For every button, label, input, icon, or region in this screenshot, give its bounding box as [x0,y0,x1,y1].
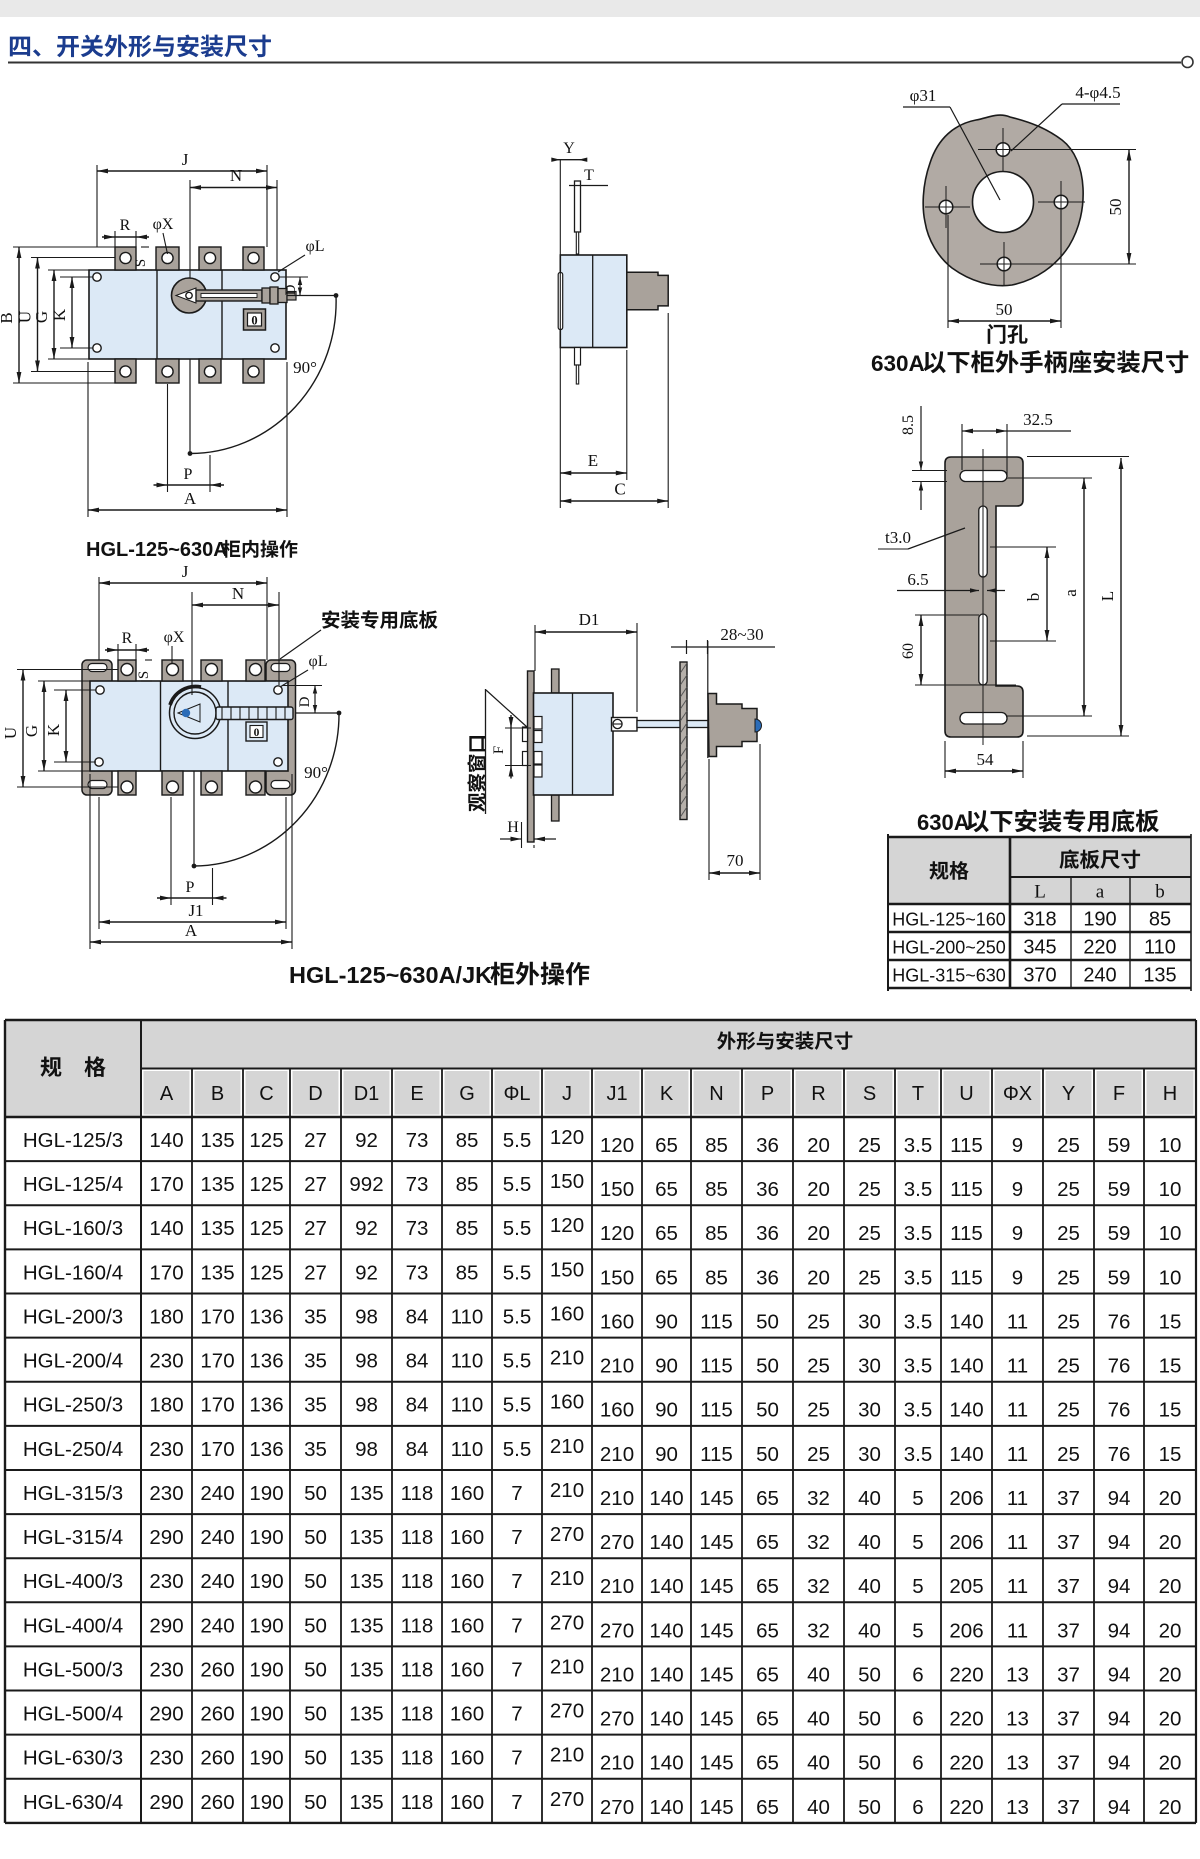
svg-text:t3.0: t3.0 [885,528,911,547]
svg-text:P: P [184,466,193,483]
svg-text:145: 145 [699,1796,733,1819]
svg-text:135: 135 [200,1173,234,1196]
svg-text:25: 25 [1057,1134,1080,1157]
svg-text:85: 85 [456,1261,479,1284]
svg-text:118: 118 [401,1570,434,1593]
svg-text:118: 118 [401,1747,434,1770]
svg-text:3.5: 3.5 [904,1310,933,1333]
svg-text:90°: 90° [293,358,317,377]
svg-text:230: 230 [149,1658,183,1681]
svg-text:140: 140 [649,1752,683,1775]
svg-text:HGL-200/4: HGL-200/4 [23,1350,123,1373]
svg-text:32: 32 [807,1487,830,1510]
svg-text:220: 220 [1083,937,1116,959]
svg-text:E: E [410,1083,423,1105]
svg-text:94: 94 [1108,1487,1131,1510]
svg-text:25: 25 [858,1266,881,1289]
svg-text:7: 7 [511,1791,522,1814]
svg-text:135: 135 [349,1614,383,1637]
svg-text:94: 94 [1108,1619,1131,1642]
svg-text:35: 35 [304,1305,327,1328]
svg-text:N: N [709,1083,723,1105]
svg-text:5.5: 5.5 [503,1394,532,1417]
svg-text:G: G [459,1083,475,1105]
svg-text:190: 190 [249,1570,283,1593]
svg-text:118: 118 [401,1482,434,1505]
svg-text:73: 73 [406,1261,429,1284]
svg-text:37: 37 [1057,1708,1080,1731]
svg-text:230: 230 [149,1747,183,1770]
svg-text:260: 260 [200,1791,234,1814]
svg-text:145: 145 [699,1752,733,1775]
svg-text:50: 50 [304,1747,327,1770]
svg-text:65: 65 [756,1619,779,1642]
svg-text:36: 36 [756,1178,779,1201]
svg-text:5: 5 [912,1531,923,1554]
svg-text:260: 260 [200,1703,234,1726]
svg-text:7: 7 [511,1703,522,1726]
svg-text:84: 84 [406,1350,429,1373]
svg-text:210: 210 [600,1487,634,1510]
svg-text:40: 40 [858,1619,881,1642]
svg-text:140: 140 [649,1531,683,1554]
svg-text:H: H [1163,1083,1177,1105]
svg-text:73: 73 [406,1129,429,1152]
svg-text:B: B [0,312,16,323]
svg-text:10: 10 [1159,1222,1182,1245]
svg-text:37: 37 [1057,1796,1080,1819]
svg-text:5.5: 5.5 [503,1173,532,1196]
svg-text:135: 135 [349,1526,383,1549]
svg-text:G: G [32,311,51,323]
svg-text:HGL-315~630: HGL-315~630 [892,966,1006,986]
svg-text:205: 205 [949,1575,983,1598]
svg-text:HGL-250/4: HGL-250/4 [23,1438,123,1461]
svg-text:145: 145 [699,1487,733,1510]
svg-text:φX: φX [164,629,185,646]
svg-text:59: 59 [1108,1266,1131,1289]
svg-text:136: 136 [249,1350,283,1373]
svg-text:260: 260 [200,1658,234,1681]
svg-text:27: 27 [304,1217,327,1240]
svg-text:R: R [811,1083,825,1105]
svg-text:115: 115 [950,1222,983,1245]
svg-text:94: 94 [1108,1708,1131,1731]
svg-text:B: B [211,1083,224,1105]
svg-text:32.5: 32.5 [1023,410,1053,429]
svg-text:140: 140 [649,1663,683,1686]
svg-text:65: 65 [655,1222,678,1245]
svg-text:ΦX: ΦX [1003,1083,1032,1105]
svg-text:125: 125 [249,1129,283,1152]
svg-text:115: 115 [950,1266,983,1289]
svg-text:50: 50 [858,1663,881,1686]
svg-text:HGL-500/3: HGL-500/3 [23,1658,123,1681]
svg-text:94: 94 [1108,1531,1131,1554]
svg-text:115: 115 [950,1134,983,1157]
svg-text:210: 210 [550,1744,584,1767]
svg-text:φL: φL [305,238,324,255]
svg-text:180: 180 [149,1394,183,1417]
svg-text:65: 65 [756,1487,779,1510]
svg-text:120: 120 [600,1222,634,1245]
svg-text:N: N [230,166,242,185]
svg-text:20: 20 [807,1266,830,1289]
svg-text:50: 50 [304,1482,327,1505]
svg-text:145: 145 [699,1619,733,1642]
svg-text:70: 70 [727,851,744,870]
svg-text:125: 125 [249,1261,283,1284]
svg-text:11: 11 [1007,1355,1028,1378]
svg-text:S: S [863,1083,876,1105]
svg-text:5: 5 [912,1487,923,1510]
svg-text:37: 37 [1057,1752,1080,1775]
svg-text:HGL-630/4: HGL-630/4 [23,1791,123,1814]
svg-text:S: S [133,259,149,267]
svg-text:220: 220 [949,1752,983,1775]
svg-text:20: 20 [1159,1663,1182,1686]
svg-text:HGL-125/4: HGL-125/4 [23,1173,123,1196]
svg-text:290: 290 [149,1703,183,1726]
svg-text:190: 190 [249,1526,283,1549]
svg-text:145: 145 [699,1531,733,1554]
svg-text:HGL-200/3: HGL-200/3 [23,1305,123,1328]
svg-text:85: 85 [705,1222,728,1245]
svg-text:3.5: 3.5 [904,1399,933,1422]
svg-text:3.5: 3.5 [904,1443,933,1466]
svg-text:50: 50 [756,1399,779,1422]
svg-text:94: 94 [1108,1575,1131,1598]
svg-text:N: N [232,584,244,603]
svg-text:3.5: 3.5 [904,1178,933,1201]
svg-text:98: 98 [355,1438,378,1461]
svg-text:630A: 630A [917,810,970,835]
svg-text:98: 98 [355,1305,378,1328]
svg-text:32: 32 [807,1531,830,1554]
svg-text:25: 25 [858,1178,881,1201]
svg-text:40: 40 [807,1708,830,1731]
svg-text:170: 170 [200,1438,234,1461]
svg-text:7: 7 [511,1614,522,1637]
svg-text:170: 170 [200,1350,234,1373]
svg-text:206: 206 [949,1531,983,1554]
svg-text:30: 30 [858,1310,881,1333]
svg-text:120: 120 [550,1214,584,1237]
svg-text:3.5: 3.5 [904,1134,933,1157]
svg-text:94: 94 [1108,1796,1131,1819]
svg-text:73: 73 [406,1173,429,1196]
svg-text:140: 140 [949,1399,983,1422]
svg-text:210: 210 [550,1567,584,1590]
svg-text:190: 190 [249,1614,283,1637]
svg-text:a: a [1061,589,1080,597]
svg-text:3.5: 3.5 [904,1222,933,1245]
svg-text:R: R [120,217,131,234]
svg-text:G: G [22,725,41,737]
svg-text:90: 90 [655,1310,678,1333]
svg-text:R: R [122,630,133,647]
svg-text:a: a [1096,882,1105,903]
svg-text:D: D [297,696,313,707]
svg-text:40: 40 [858,1531,881,1554]
svg-text:K: K [660,1083,674,1105]
svg-text:118: 118 [401,1614,434,1637]
svg-text:160: 160 [450,1526,484,1549]
svg-text:110: 110 [451,1394,484,1417]
svg-text:90: 90 [655,1355,678,1378]
svg-text:210: 210 [550,1435,584,1458]
svg-text:9: 9 [1012,1178,1023,1201]
svg-text:140: 140 [149,1217,183,1240]
svg-text:32: 32 [807,1575,830,1598]
svg-text:50: 50 [304,1703,327,1726]
svg-text:3.5: 3.5 [904,1266,933,1289]
svg-text:11: 11 [1007,1619,1028,1642]
svg-text:25: 25 [1057,1266,1080,1289]
svg-text:59: 59 [1108,1222,1131,1245]
svg-text:9: 9 [1012,1266,1023,1289]
svg-text:92: 92 [355,1261,378,1284]
svg-text:50: 50 [304,1791,327,1814]
svg-text:37: 37 [1057,1663,1080,1686]
svg-text:HGL-250/3: HGL-250/3 [23,1394,123,1417]
svg-text:150: 150 [600,1178,634,1201]
svg-text:65: 65 [655,1266,678,1289]
svg-text:9: 9 [1012,1134,1023,1157]
svg-text:5: 5 [912,1619,923,1642]
svg-text:25: 25 [1057,1399,1080,1422]
svg-text:28~30: 28~30 [720,625,763,644]
svg-text:11: 11 [1007,1399,1028,1422]
svg-text:U: U [959,1083,973,1105]
svg-text:32: 32 [807,1619,830,1642]
svg-text:35: 35 [304,1350,327,1373]
svg-text:270: 270 [600,1619,634,1642]
svg-text:J: J [182,562,189,581]
svg-text:20: 20 [807,1178,830,1201]
svg-text:J1: J1 [188,901,203,920]
svg-text:27: 27 [304,1261,327,1284]
svg-text:140: 140 [649,1575,683,1598]
svg-text:260: 260 [200,1747,234,1770]
svg-text:140: 140 [949,1355,983,1378]
svg-text:15: 15 [1159,1443,1182,1466]
svg-text:C: C [259,1083,273,1105]
svg-text:HGL-125/3: HGL-125/3 [23,1129,123,1152]
svg-text:65: 65 [756,1708,779,1731]
svg-text:54: 54 [977,750,995,769]
svg-text:230: 230 [149,1570,183,1593]
svg-text:160: 160 [550,1391,584,1414]
svg-text:T: T [584,167,594,184]
svg-text:118: 118 [401,1703,434,1726]
svg-text:120: 120 [600,1134,634,1157]
svg-text:5: 5 [912,1575,923,1598]
svg-text:170: 170 [149,1261,183,1284]
svg-text:13: 13 [1006,1663,1029,1686]
svg-text:30: 30 [858,1443,881,1466]
svg-text:50: 50 [756,1355,779,1378]
svg-text:HGL-315/4: HGL-315/4 [23,1526,123,1549]
svg-text:50: 50 [858,1708,881,1731]
svg-text:270: 270 [550,1700,584,1723]
svg-text:10: 10 [1159,1178,1182,1201]
svg-text:318: 318 [1023,909,1056,931]
svg-text:59: 59 [1108,1134,1131,1157]
svg-text:290: 290 [149,1791,183,1814]
svg-text:270: 270 [550,1611,584,1634]
svg-text:50: 50 [304,1614,327,1637]
svg-text:7: 7 [511,1658,522,1681]
svg-text:190: 190 [249,1482,283,1505]
svg-text:8.5: 8.5 [900,415,917,435]
svg-text:25: 25 [807,1310,830,1333]
svg-text:145: 145 [699,1663,733,1686]
svg-text:40: 40 [858,1575,881,1598]
svg-text:210: 210 [600,1663,634,1686]
svg-text:50: 50 [858,1796,881,1819]
svg-text:206: 206 [949,1487,983,1510]
svg-text:15: 15 [1159,1399,1182,1422]
svg-text:210: 210 [550,1479,584,1502]
svg-text:HGL-125~630A: HGL-125~630A [86,539,228,561]
svg-text:20: 20 [1159,1531,1182,1554]
svg-text:136: 136 [249,1305,283,1328]
svg-text:220: 220 [949,1708,983,1731]
svg-text:20: 20 [1159,1619,1182,1642]
svg-text:20: 20 [807,1134,830,1157]
svg-text:10: 10 [1159,1266,1182,1289]
svg-text:36: 36 [756,1222,779,1245]
svg-text:D1: D1 [354,1083,380,1105]
svg-text:P: P [186,879,195,896]
svg-text:A: A [185,921,198,940]
svg-text:7: 7 [511,1482,522,1505]
svg-text:D: D [283,284,299,295]
svg-text:J1: J1 [606,1083,627,1105]
svg-text:A: A [160,1083,174,1105]
svg-text:11: 11 [1007,1487,1028,1510]
svg-text:140: 140 [649,1619,683,1642]
svg-text:6: 6 [912,1796,923,1819]
svg-text:210: 210 [600,1355,634,1378]
svg-text:HGL-630/3: HGL-630/3 [23,1747,123,1770]
svg-text:9: 9 [1012,1222,1023,1245]
svg-text:125: 125 [249,1217,283,1240]
svg-text:85: 85 [705,1134,728,1157]
svg-text:290: 290 [149,1526,183,1549]
svg-text:65: 65 [655,1178,678,1201]
svg-text:240: 240 [200,1614,234,1637]
svg-text:230: 230 [149,1350,183,1373]
svg-text:110: 110 [451,1305,484,1328]
svg-text:160: 160 [600,1399,634,1422]
svg-text:94: 94 [1108,1663,1131,1686]
svg-text:140: 140 [149,1129,183,1152]
svg-text:HGL-125~160: HGL-125~160 [892,910,1006,930]
svg-text:160: 160 [450,1658,484,1681]
svg-text:140: 140 [649,1487,683,1510]
svg-text:160: 160 [450,1703,484,1726]
svg-text:190: 190 [249,1658,283,1681]
svg-text:85: 85 [456,1217,479,1240]
svg-text:20: 20 [1159,1708,1182,1731]
svg-text:110: 110 [451,1438,484,1461]
svg-text:992: 992 [349,1173,383,1196]
svg-text:25: 25 [1057,1310,1080,1333]
svg-text:140: 140 [949,1310,983,1333]
svg-text:84: 84 [406,1305,429,1328]
svg-text:HGL-500/4: HGL-500/4 [23,1703,123,1726]
svg-text:HGL-315/3: HGL-315/3 [23,1482,123,1505]
svg-text:65: 65 [756,1575,779,1598]
svg-text:20: 20 [1159,1796,1182,1819]
svg-text:HGL-400/4: HGL-400/4 [23,1614,123,1637]
svg-text:20: 20 [1159,1752,1182,1775]
svg-text:190: 190 [249,1703,283,1726]
svg-text:27: 27 [304,1173,327,1196]
svg-text:190: 190 [249,1791,283,1814]
svg-text:40: 40 [807,1752,830,1775]
svg-text:118: 118 [401,1791,434,1814]
svg-text:6.5: 6.5 [907,570,928,589]
svg-text:F: F [1113,1083,1125,1105]
svg-text:85: 85 [705,1178,728,1201]
svg-text:6: 6 [912,1663,923,1686]
svg-text:210: 210 [550,1655,584,1678]
svg-text:115: 115 [700,1310,733,1333]
svg-text:73: 73 [406,1217,429,1240]
svg-text:98: 98 [355,1350,378,1373]
svg-text:90: 90 [655,1399,678,1422]
svg-text:3.5: 3.5 [904,1355,933,1378]
svg-text:25: 25 [807,1355,830,1378]
svg-text:25: 25 [858,1222,881,1245]
svg-text:5.5: 5.5 [503,1350,532,1373]
svg-text:11: 11 [1007,1575,1028,1598]
svg-text:150: 150 [600,1266,634,1289]
svg-text:K: K [50,308,69,321]
svg-text:135: 135 [1143,965,1176,987]
svg-text:25: 25 [807,1399,830,1422]
svg-text:76: 76 [1108,1310,1131,1333]
svg-text:170: 170 [200,1305,234,1328]
svg-text:115: 115 [700,1355,733,1378]
svg-text:7: 7 [511,1526,522,1549]
svg-text:P: P [761,1083,774,1105]
svg-text:90°: 90° [304,763,328,782]
svg-text:37: 37 [1057,1575,1080,1598]
svg-text:D1: D1 [579,610,600,629]
svg-text:170: 170 [149,1173,183,1196]
svg-text:20: 20 [807,1222,830,1245]
svg-text:135: 135 [200,1129,234,1152]
svg-text:b: b [1155,882,1165,903]
svg-text:85: 85 [705,1266,728,1289]
svg-text:T: T [912,1083,924,1105]
svg-text:345: 345 [1023,937,1056,959]
svg-text:15: 15 [1159,1355,1182,1378]
svg-text:90: 90 [655,1443,678,1466]
svg-text:25: 25 [858,1134,881,1157]
svg-text:0: 0 [254,727,260,739]
svg-text:210: 210 [600,1575,634,1598]
svg-text:136: 136 [249,1394,283,1417]
svg-text:210: 210 [550,1347,584,1370]
svg-text:270: 270 [600,1531,634,1554]
svg-text:37: 37 [1057,1487,1080,1510]
svg-text:D: D [308,1083,322,1105]
